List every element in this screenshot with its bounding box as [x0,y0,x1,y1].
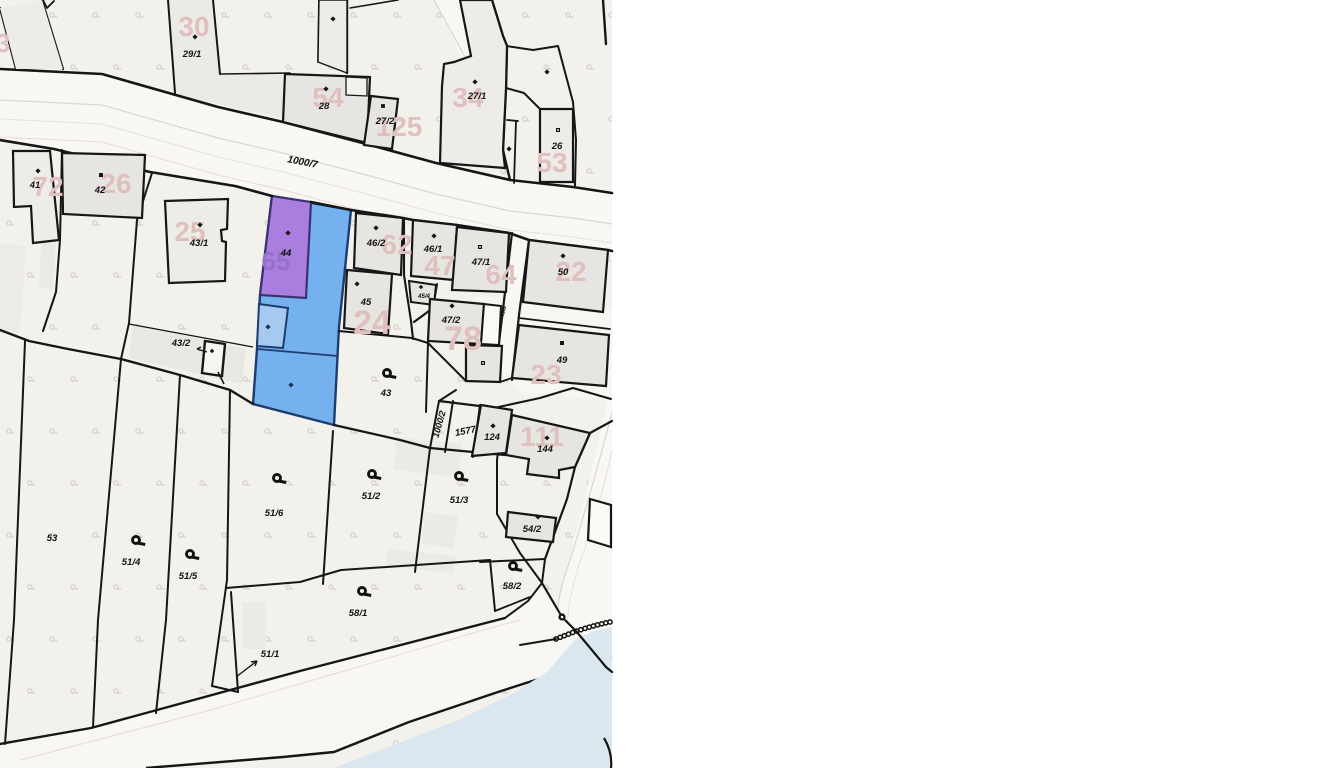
svg-text:49: 49 [556,355,568,366]
svg-text:51/1: 51/1 [261,649,280,660]
svg-text:27/1: 27/1 [467,91,487,102]
svg-text:43/2: 43/2 [171,338,191,349]
svg-text:43/1: 43/1 [189,238,209,249]
svg-text:29/1: 29/1 [182,49,202,60]
svg-text:51/2: 51/2 [362,491,381,502]
svg-text:51/6: 51/6 [265,508,284,519]
svg-text:26: 26 [551,141,563,152]
svg-text:3: 3 [0,28,10,58]
svg-text:124: 124 [484,432,501,443]
svg-text:24: 24 [353,304,391,342]
svg-text:45: 45 [360,297,372,308]
svg-text:27/2: 27/2 [375,116,395,127]
svg-text:28: 28 [318,101,330,112]
svg-text:43: 43 [380,388,392,399]
svg-text:47/2: 47/2 [441,315,461,326]
svg-text:54/2: 54/2 [523,524,542,535]
svg-text:51/5: 51/5 [179,571,198,582]
svg-text:58/1: 58/1 [349,608,368,619]
svg-text:144: 144 [537,444,554,455]
svg-text:44: 44 [280,248,292,259]
svg-text:58/2: 58/2 [503,581,522,592]
svg-text:45/4: 45/4 [417,294,430,300]
svg-text:46/1: 46/1 [423,244,443,255]
svg-text:42: 42 [94,185,106,196]
svg-text:50: 50 [558,267,569,278]
svg-text:51/3: 51/3 [450,495,469,506]
svg-text:47/1: 47/1 [471,257,491,268]
svg-text:62: 62 [381,229,412,260]
svg-text:53: 53 [47,533,58,544]
svg-text:46/2: 46/2 [366,238,386,249]
svg-text:51/4: 51/4 [122,557,141,568]
svg-text:41: 41 [29,180,41,191]
